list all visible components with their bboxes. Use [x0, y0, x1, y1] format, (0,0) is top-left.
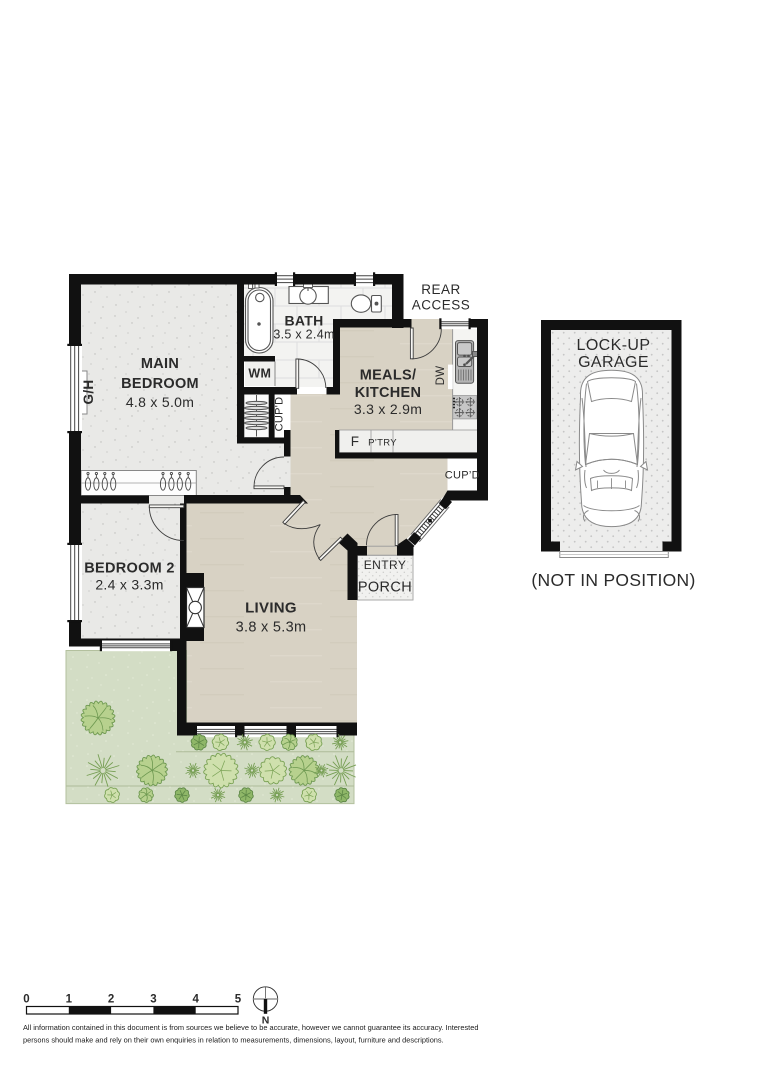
svg-text:CUP'D: CUP'D [274, 397, 286, 432]
svg-text:(NOT IN POSITION): (NOT IN POSITION) [531, 570, 695, 590]
svg-text:WM: WM [248, 367, 271, 381]
svg-text:2: 2 [108, 994, 114, 1006]
svg-text:3.8 x 5.3m: 3.8 x 5.3m [236, 620, 307, 636]
svg-text:MEALS/: MEALS/ [360, 368, 417, 384]
svg-text:CUP’D: CUP’D [445, 470, 480, 482]
svg-text:BEDROOM: BEDROOM [121, 376, 199, 392]
svg-text:MAIN: MAIN [141, 356, 179, 372]
svg-text:4: 4 [192, 994, 199, 1006]
svg-text:DW: DW [435, 366, 447, 386]
svg-text:persons should make and rely o: persons should make and rely on their ow… [23, 1036, 444, 1045]
svg-text:LOCK-UP: LOCK-UP [577, 337, 651, 354]
svg-text:4.8 x 5.0m: 4.8 x 5.0m [126, 394, 194, 410]
svg-text:0: 0 [23, 994, 29, 1006]
svg-text:GARAGE: GARAGE [578, 354, 649, 371]
svg-text:BEDROOM 2: BEDROOM 2 [84, 561, 175, 577]
svg-text:ACCESS: ACCESS [412, 298, 471, 313]
svg-text:2.4 x 3.3m: 2.4 x 3.3m [95, 577, 163, 593]
svg-text:LIVING: LIVING [245, 600, 297, 617]
svg-text:REAR: REAR [421, 282, 461, 297]
svg-text:All information contained in t: All information contained in this docume… [23, 1023, 478, 1032]
svg-text:3.5 x 2.4m: 3.5 x 2.4m [273, 328, 334, 342]
svg-text:P’TRY: P’TRY [368, 438, 397, 449]
svg-text:KITCHEN: KITCHEN [355, 385, 422, 401]
svg-text:5: 5 [235, 994, 242, 1006]
svg-text:1: 1 [66, 994, 73, 1006]
svg-text:F: F [351, 434, 360, 449]
svg-text:G/H: G/H [81, 380, 96, 405]
svg-text:PORCH: PORCH [358, 580, 412, 596]
svg-text:3.3 x 2.9m: 3.3 x 2.9m [354, 401, 422, 417]
svg-text:BATH: BATH [284, 313, 323, 329]
svg-text:3: 3 [150, 994, 156, 1006]
svg-text:ENTRY: ENTRY [364, 558, 406, 572]
